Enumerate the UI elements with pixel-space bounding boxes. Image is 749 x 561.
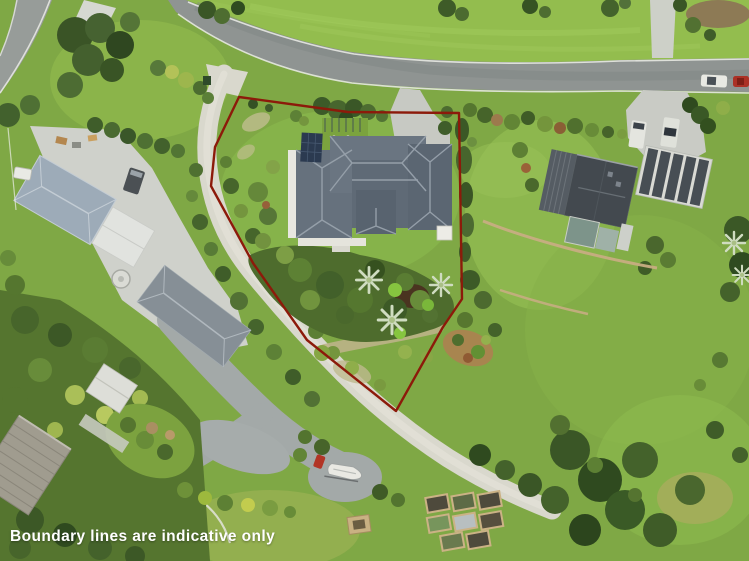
water-tank (112, 270, 130, 288)
white-car (701, 74, 728, 87)
trash-bin (203, 76, 211, 85)
aerial-photo: Boundary lines are indicative only (0, 0, 749, 561)
aerial-photo-canvas (0, 0, 749, 561)
glass-roof-section (565, 216, 600, 248)
south-deck (298, 238, 366, 246)
picnic-table (347, 515, 371, 535)
photo-caption: Boundary lines are indicative only (10, 528, 275, 546)
parked-cars-on-road (701, 74, 749, 87)
white-caravan (13, 167, 32, 181)
solar-panels (300, 132, 322, 162)
red-car (733, 76, 749, 87)
small-outbuilding (437, 226, 452, 240)
west-deck (288, 150, 297, 238)
